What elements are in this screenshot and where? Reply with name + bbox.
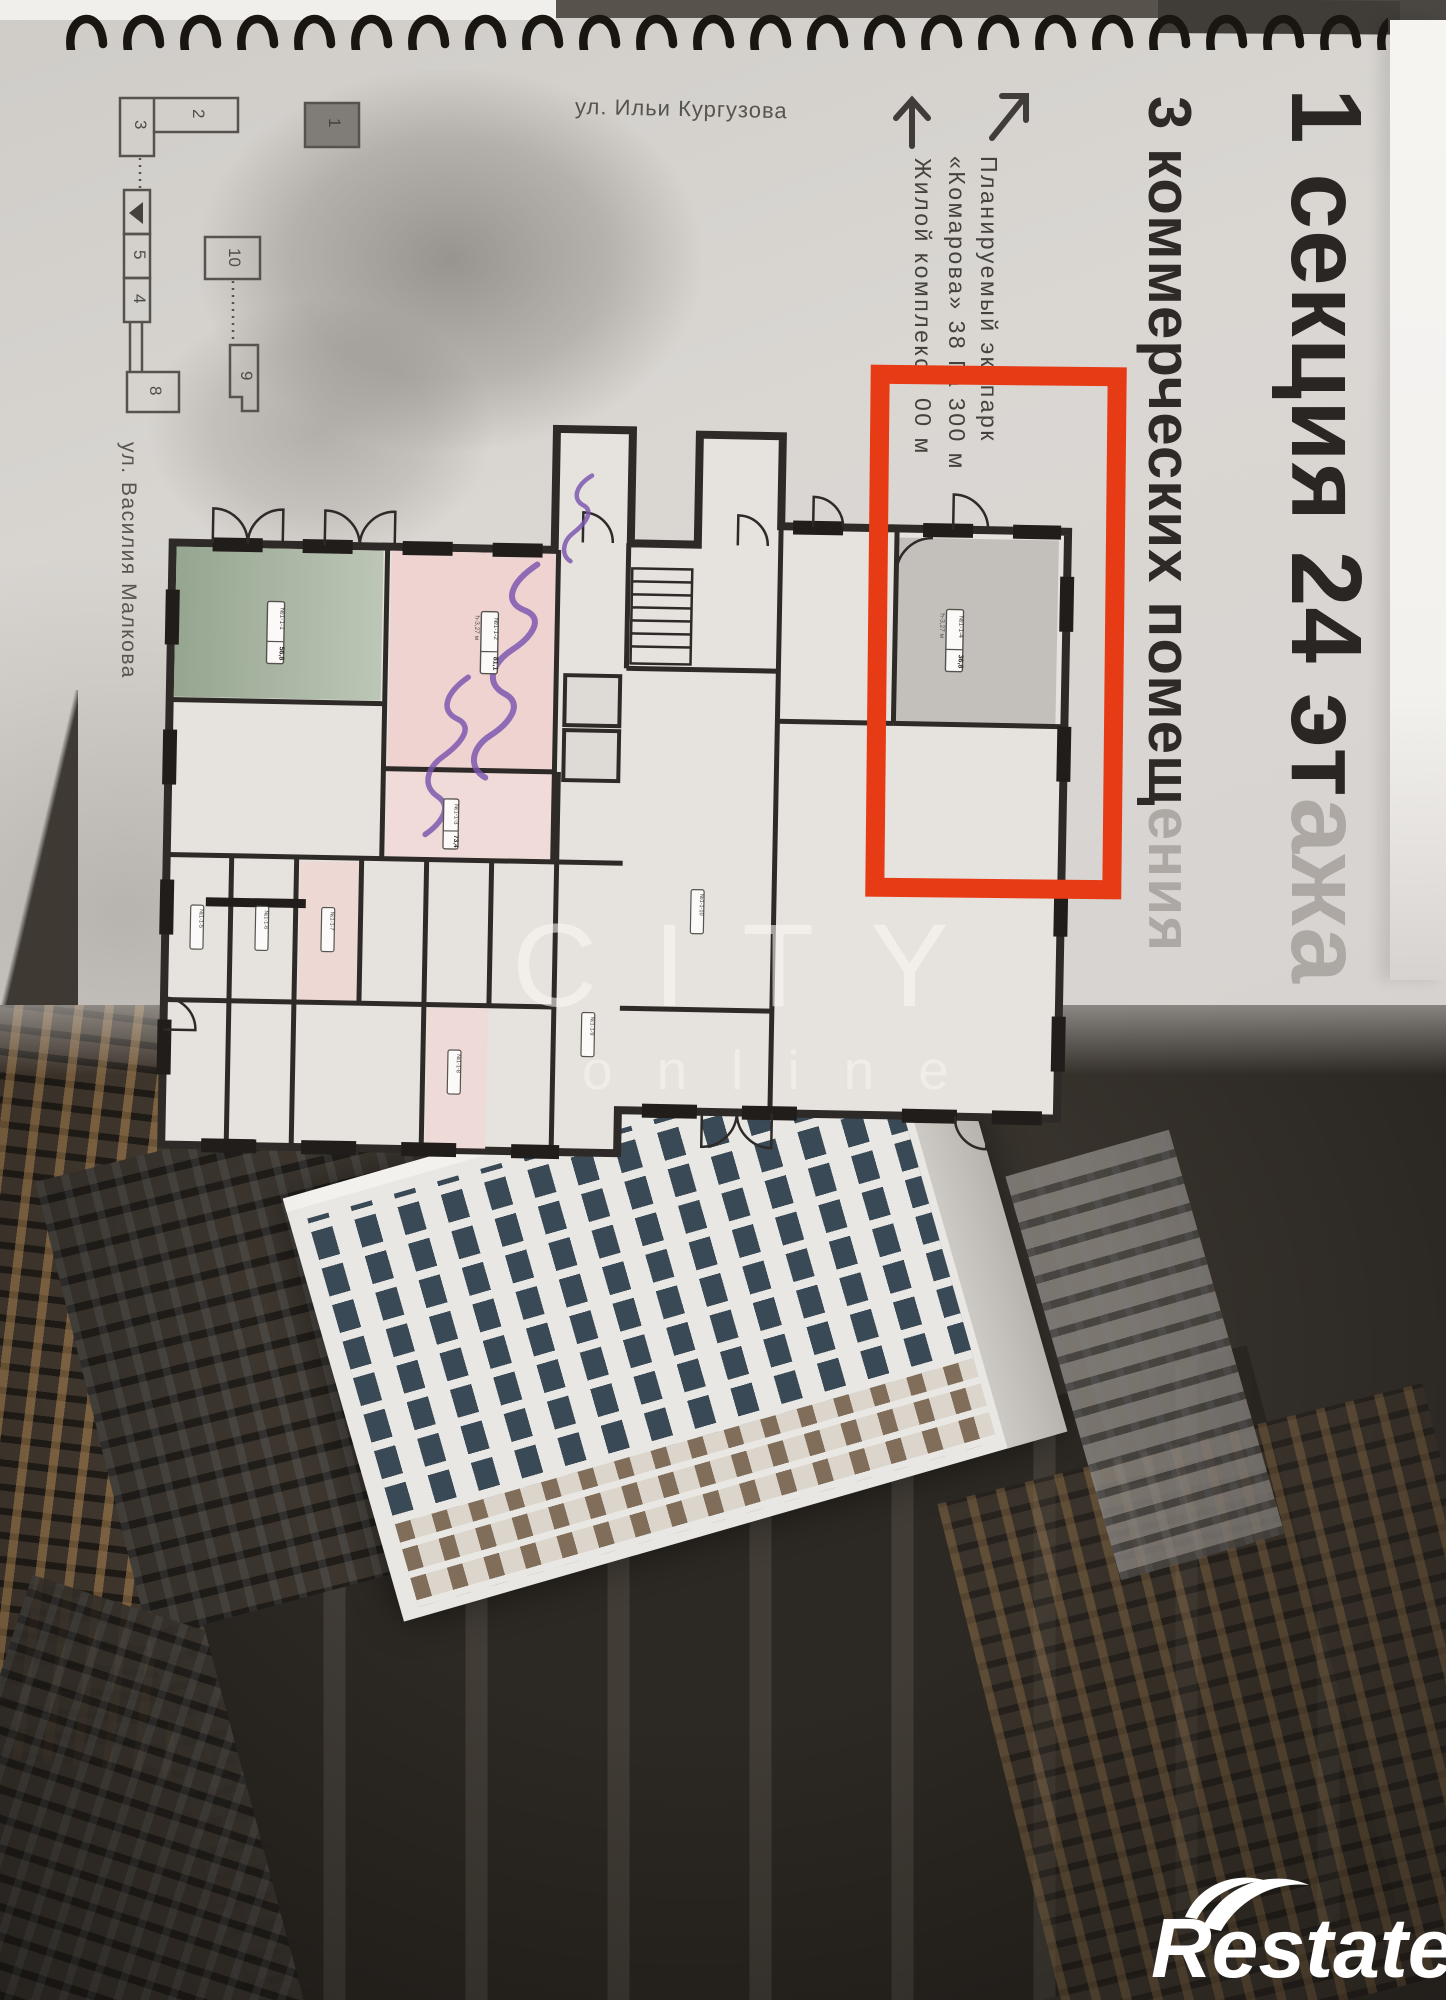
svg-text:2: 2 <box>189 109 208 118</box>
svg-text:1: 1 <box>325 118 344 127</box>
svg-text:№1-1-3: №1-1-3 <box>452 804 459 825</box>
svg-text:73,4: 73,4 <box>452 835 459 848</box>
svg-text:4: 4 <box>130 294 149 303</box>
svg-text:8: 8 <box>146 386 165 395</box>
unit-label-pink-b: №1-1-3 73,4 <box>443 799 460 849</box>
svg-text:№1-1-8: №1-1-8 <box>455 1054 461 1073</box>
arrow-diagonal-icon <box>982 86 1034 144</box>
restate-logo: Restate <box>1133 1855 1446 2000</box>
svg-text:3: 3 <box>131 120 150 129</box>
street-label-left: ул. Василия Малкова <box>115 442 142 679</box>
site-plan: 3 2 1 5 4 8 10 9 <box>95 85 385 435</box>
annotation-complex-distance: 00 м <box>907 398 938 456</box>
svg-text:№1-1-5: №1-1-5 <box>197 909 203 928</box>
svg-text:5: 5 <box>130 250 149 259</box>
svg-text:81,1: 81,1 <box>491 657 498 671</box>
svg-text:№1-1-6: №1-1-6 <box>262 910 268 929</box>
unit-label-green: №1-1-1 56,8 <box>266 601 285 663</box>
street-label-top: ул. Ильи Кургузова <box>575 94 788 124</box>
spiral-binding <box>0 0 1446 50</box>
height-note: h-3,27 м <box>473 615 480 640</box>
page-left-wedge <box>0 690 78 1020</box>
highlight-rectangle <box>865 365 1127 900</box>
svg-text:№1-1-7: №1-1-7 <box>328 912 334 931</box>
room-pink-a <box>387 551 558 770</box>
watermark-online: online <box>582 1038 993 1102</box>
photographed-floorplan-page: { "streets": { "top": "ул. Ильи Кургузов… <box>0 0 1446 2000</box>
page-title-line1: 1 секция 24 этажа <box>1250 88 1402 984</box>
watermark-city: CITY <box>512 898 1005 1034</box>
svg-text:№1-1-2: №1-1-2 <box>492 618 499 641</box>
svg-text:№1-1-1: №1-1-1 <box>278 608 285 631</box>
page-title-line2: 3 коммерческих помещения <box>1126 96 1212 952</box>
site-marker-triangle <box>129 202 143 224</box>
svg-text:10: 10 <box>225 248 244 267</box>
arrow-straight-icon <box>888 92 936 150</box>
site-plan-numbers: 3 2 1 5 4 8 10 9 <box>130 109 344 395</box>
room-pink-b <box>386 771 555 860</box>
restate-logo-text: Restate <box>1151 1901 1446 1995</box>
svg-text:9: 9 <box>237 371 256 380</box>
annotation-complex: Жилой комплекс <box>907 158 938 372</box>
svg-text:56,8: 56,8 <box>277 647 284 661</box>
